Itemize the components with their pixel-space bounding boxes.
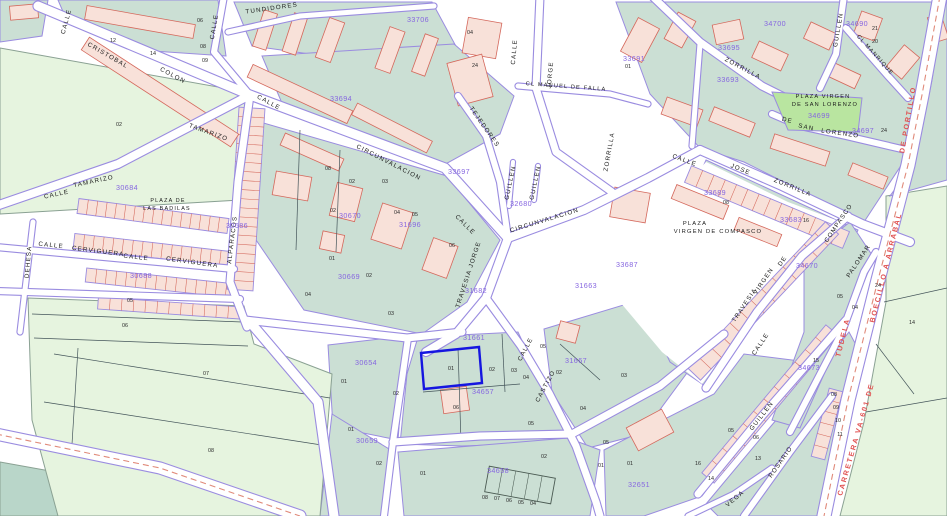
parcel-number-label: 04 <box>580 406 586 412</box>
parcel-number-label: 02 <box>376 461 382 467</box>
parcel-number-label: 04 <box>523 375 529 381</box>
block-number-label: 34690 <box>846 19 868 28</box>
parcel-number-label: 08 <box>208 448 214 454</box>
block-number-label: 33697 <box>448 167 470 176</box>
parcel-number-label: 02 <box>116 122 122 128</box>
block-number-label: 34697 <box>852 126 874 135</box>
parcel-number-label: 07 <box>494 496 500 502</box>
parcel-number-label: 06 <box>122 323 128 329</box>
parcel-number-label: 01 <box>627 461 633 467</box>
block-number-label: 33683 <box>780 215 802 224</box>
parcel-number-label: 10 <box>835 418 841 424</box>
parcel-number-label: 15 <box>813 358 819 364</box>
parcel-number-label: 01 <box>625 64 631 70</box>
parcel-number-label: 02 <box>349 179 355 185</box>
selected-parcel-number: 01 <box>448 366 454 372</box>
parcel-number-label: 03 <box>388 311 394 317</box>
parcel-number-label: 02 <box>366 273 372 279</box>
parcel-number-label: 05 <box>837 294 843 300</box>
block-number-label: 33695 <box>718 43 740 52</box>
block-number-label: 31696 <box>399 220 421 229</box>
block-number-label: 30686 <box>226 221 248 230</box>
street-name-label: PLAZA <box>683 221 707 227</box>
block-number-label: 33689 <box>704 188 726 197</box>
block-number-label: 34699 <box>808 111 830 120</box>
street-name-label: CALLE <box>510 39 519 65</box>
parcel-number-label: 11 <box>837 432 843 438</box>
parcel-number-label: 13 <box>755 456 761 462</box>
parcel-number-label: 24 <box>875 283 881 289</box>
parcel-number-label: 05 <box>518 500 524 506</box>
block-number-label: 31661 <box>463 333 485 342</box>
parcel-number-label: 03 <box>382 179 388 185</box>
parcel-number-label: 09 <box>202 58 208 64</box>
parcel-number-label: 02 <box>330 208 336 214</box>
parcel-number-label: 14 <box>150 51 156 57</box>
block-number-label: 32680 <box>510 199 532 208</box>
parcel-number-label: 16 <box>803 218 809 224</box>
parcel-number-label: 24 <box>472 63 478 69</box>
block-number-label: 30659 <box>356 436 378 445</box>
parcel-number-label: 04 <box>852 305 858 311</box>
block-number-label: 34658 <box>487 466 509 475</box>
block-number-label: 32651 <box>628 480 650 489</box>
street-name-label: ZORRILLA <box>603 132 617 172</box>
parcel-number-label: 08 <box>831 392 837 398</box>
parcel-number-label: 08 <box>723 200 729 206</box>
block-number-label: 34700 <box>764 19 786 28</box>
parcel-number-label: 12 <box>110 38 116 44</box>
parcel-number-label: 02 <box>541 454 547 460</box>
block-number-label: 34657 <box>472 387 494 396</box>
map-viewport[interactable]: 01 CALLECRISTOBALCOLONCALLETUNDIDORESCAL… <box>0 0 947 516</box>
parcel-number-label: 08 <box>325 166 331 172</box>
parcel-number-label: 01 <box>348 427 354 433</box>
parcel-number-label: 03 <box>621 373 627 379</box>
parcel-number-label: 21 <box>872 26 878 32</box>
parcel-number-label: 14 <box>909 320 915 326</box>
block-number-label: 33694 <box>330 94 352 103</box>
parcel-number-label: 01 <box>420 471 426 477</box>
parcel-number-label: 16 <box>695 461 701 467</box>
street-name-label: DEHESA <box>24 245 34 278</box>
parcel-number-label: 01 <box>341 379 347 385</box>
street-name-label: GUILLEN <box>503 165 517 201</box>
parcel-number-label: 07 <box>203 371 209 377</box>
parcel-number-label: 08 <box>482 495 488 501</box>
block-number-label: 33693 <box>717 75 739 84</box>
parcel-number-label: 20 <box>872 39 878 45</box>
parcel-number-label: 06 <box>506 498 512 504</box>
parcel-number-label: 08 <box>200 44 206 50</box>
parcel-number-label: 05 <box>728 428 734 434</box>
parcel-number-label: 05 <box>127 298 133 304</box>
building-footprint <box>462 17 502 58</box>
block-number-label: 30654 <box>355 358 377 367</box>
block-number-label: 34673 <box>798 363 820 372</box>
block-number-label: 30669 <box>338 272 360 281</box>
street-name-label: CALLE <box>751 332 771 357</box>
parcel-number-label: 05 <box>528 421 534 427</box>
parcel-number-label: 06 <box>449 243 455 249</box>
parcel-number-label: 05 <box>540 344 546 350</box>
street-name-label: VIRGEN DE COMPASCO <box>674 229 763 235</box>
block-number-label: 33691 <box>623 54 645 63</box>
parcel-number-label: 04 <box>394 210 400 216</box>
parcel-number-label: 02 <box>556 370 562 376</box>
parcel-number-label: 14 <box>708 476 714 482</box>
parcel-number-label: 06 <box>753 435 759 441</box>
parcel-number-label: 01 <box>598 463 604 469</box>
parcel-number-label: 04 <box>305 292 311 298</box>
parcel-number-label: 05 <box>412 212 418 218</box>
street-name-label: DE SAN LORENZO <box>792 102 858 108</box>
block-number-label: 34670 <box>796 261 818 270</box>
cadastral-block[interactable] <box>28 298 332 516</box>
street-name-label: PLAZA VIRGEN <box>796 94 851 100</box>
block-number-label: 30684 <box>116 183 138 192</box>
cadastral-map[interactable]: 01 CALLECRISTOBALCOLONCALLETUNDIDORESCAL… <box>0 0 947 516</box>
parcel-number-label: 02 <box>489 367 495 373</box>
block-number-label: 31682 <box>465 286 487 295</box>
block-number-label: 31667 <box>565 356 587 365</box>
parcel-number-label: 06 <box>197 18 203 24</box>
parcel-number-label: 05 <box>603 440 609 446</box>
block-number-label: 31663 <box>575 281 597 290</box>
parcel-number-label: 02 <box>393 391 399 397</box>
parcel-number-label: 24 <box>881 128 887 134</box>
block-number-label: 30670 <box>339 211 361 220</box>
block-number-label: 33706 <box>407 15 429 24</box>
parcel-number-label: 01 <box>329 256 335 262</box>
parcel-number-label: 09 <box>833 405 839 411</box>
parcel-number-label: 04 <box>530 501 536 507</box>
block-number-label: 30688 <box>130 271 152 280</box>
street-name-label: GUILLEN <box>528 165 542 201</box>
street-name-label: PLAZA DE <box>150 198 185 204</box>
parcel-number-label: 04 <box>467 30 473 36</box>
parcel-number-label: 03 <box>511 368 517 374</box>
parcel-number-label: 06 <box>453 405 459 411</box>
street-name-label: LAS BADILAS <box>143 206 191 212</box>
block-number-label: 33687 <box>616 260 638 269</box>
